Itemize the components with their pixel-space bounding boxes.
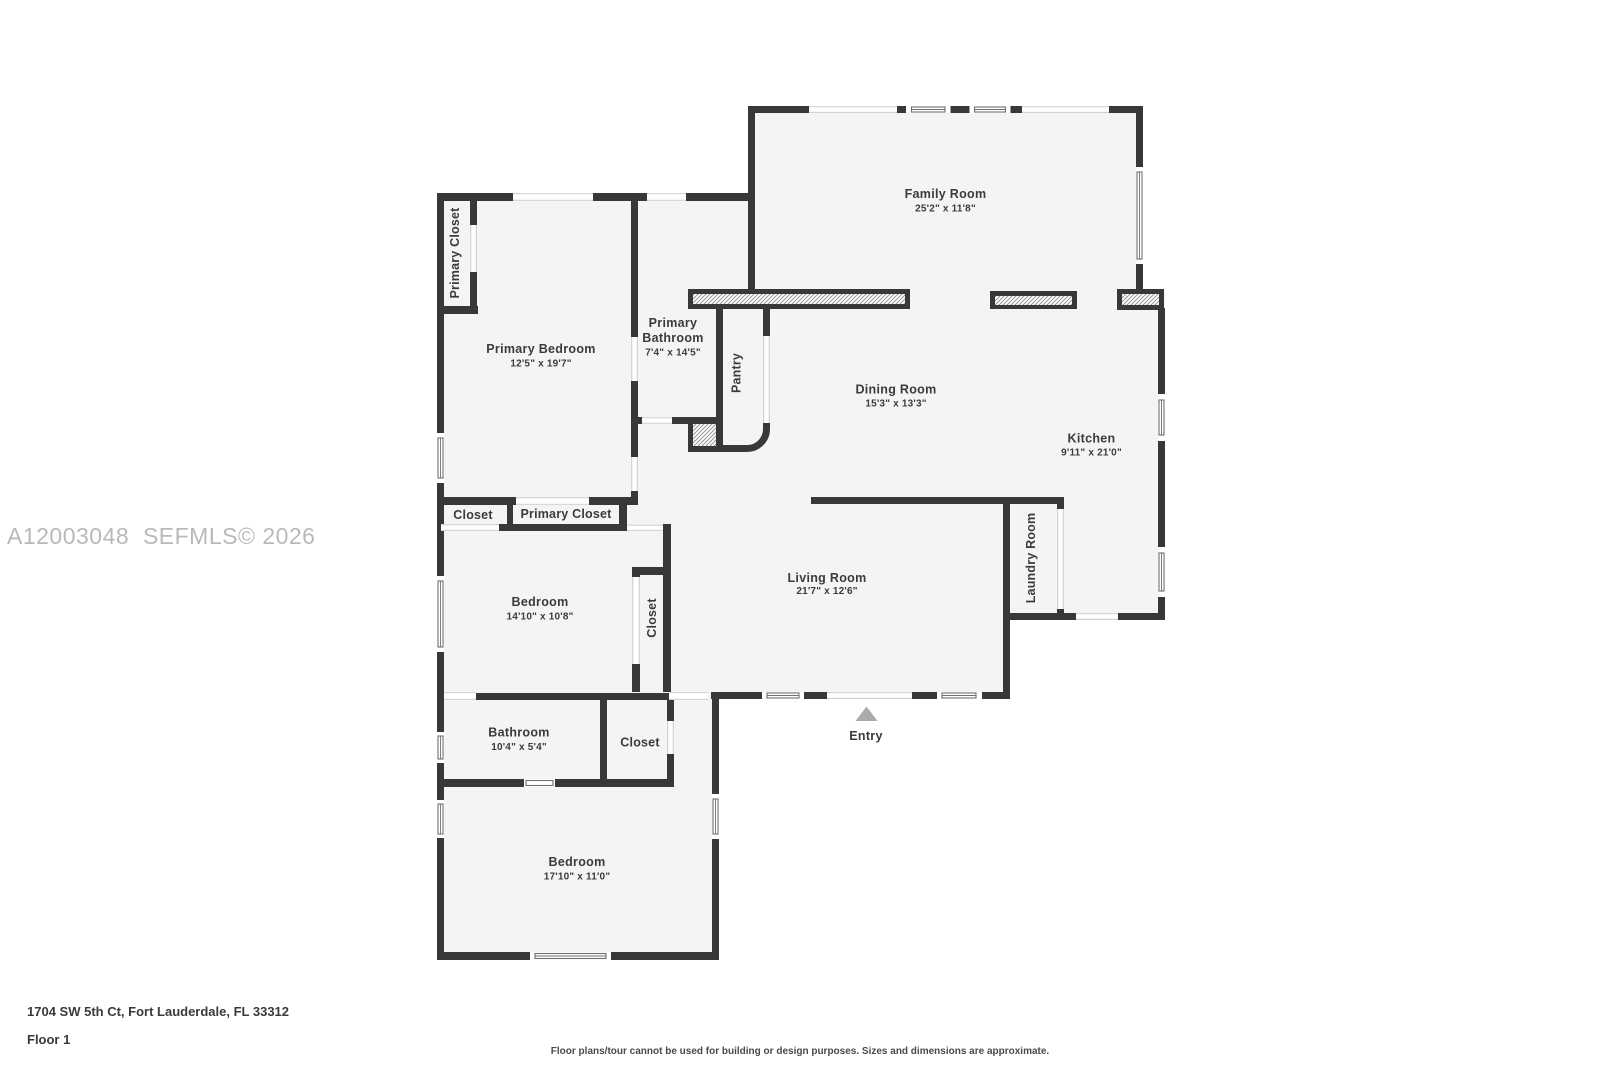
svg-text:Closet: Closet xyxy=(453,508,493,522)
svg-text:Primary Closet: Primary Closet xyxy=(448,207,462,299)
svg-text:Dining Room: Dining Room xyxy=(855,383,936,397)
svg-text:15'3" x 13'3": 15'3" x 13'3" xyxy=(865,399,926,410)
svg-text:Floor plans/tour cannot be use: Floor plans/tour cannot be used for buil… xyxy=(551,1046,1050,1057)
svg-text:Bedroom: Bedroom xyxy=(512,595,569,609)
svg-text:10'4" x 5'4": 10'4" x 5'4" xyxy=(491,742,547,753)
svg-text:Bathroom: Bathroom xyxy=(642,331,703,345)
svg-text:Primary Closet: Primary Closet xyxy=(520,507,612,521)
svg-text:Floor 1: Floor 1 xyxy=(27,1032,70,1047)
svg-text:12'5" x 19'7": 12'5" x 19'7" xyxy=(510,359,571,370)
svg-text:Closet: Closet xyxy=(620,736,660,750)
svg-text:A12003048 SEFMLS© 2026: A12003048 SEFMLS© 2026 xyxy=(7,523,315,549)
svg-text:Closet: Closet xyxy=(645,598,659,638)
svg-text:17'10" x 11'0": 17'10" x 11'0" xyxy=(544,872,611,883)
svg-text:9'11" x 21'0": 9'11" x 21'0" xyxy=(1061,448,1122,459)
svg-text:Family Room: Family Room xyxy=(905,187,987,201)
svg-text:21'7" x 12'6": 21'7" x 12'6" xyxy=(796,586,857,597)
svg-text:Living Room: Living Room xyxy=(788,571,867,585)
svg-text:Pantry: Pantry xyxy=(730,353,744,393)
svg-text:Laundry Room: Laundry Room xyxy=(1024,513,1038,604)
svg-text:Kitchen: Kitchen xyxy=(1068,432,1116,446)
svg-text:7'4" x 14'5": 7'4" x 14'5" xyxy=(645,348,701,359)
svg-text:Bedroom: Bedroom xyxy=(549,855,606,869)
svg-text:Primary: Primary xyxy=(649,316,698,330)
svg-text:Primary Bedroom: Primary Bedroom xyxy=(486,342,595,356)
svg-text:Bathroom: Bathroom xyxy=(488,726,549,740)
svg-text:Entry: Entry xyxy=(849,729,882,743)
svg-text:14'10" x 10'8": 14'10" x 10'8" xyxy=(506,612,573,623)
svg-text:1704 SW 5th Ct, Fort Lauderdal: 1704 SW 5th Ct, Fort Lauderdale, FL 3331… xyxy=(27,1004,289,1019)
svg-text:25'2" x 11'8": 25'2" x 11'8" xyxy=(915,204,976,215)
